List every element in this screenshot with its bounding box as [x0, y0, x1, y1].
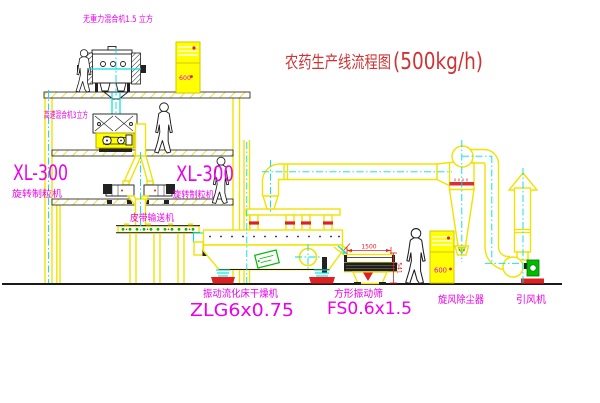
sieve-length-dim: 1500	[361, 244, 376, 251]
cabinet-upper-text: 600	[179, 74, 191, 82]
person-figure	[406, 229, 425, 284]
square-sieve-machine	[344, 255, 397, 285]
belt-conveyor-machine	[116, 223, 200, 283]
high-speed-mixer	[93, 114, 137, 152]
fluid-bed-dryer-machine	[204, 209, 343, 284]
granulator-left-model-label: XL-300	[13, 161, 68, 185]
control-cabinet-upper: 600	[176, 42, 200, 93]
induced-fan-machine	[503, 257, 544, 284]
indicator-light	[447, 236, 450, 239]
dryer-model-label: ZLG6x0.75	[190, 300, 294, 321]
fan-base	[521, 279, 544, 284]
top-platform-beam	[44, 92, 250, 98]
granulator-right-model-label: XL-300	[176, 162, 234, 186]
sieve-height-dim: 541	[396, 262, 403, 274]
granulator-left-name-label: 旋转制粒机	[12, 188, 63, 200]
belt-conveyor-label: 皮带输送机	[130, 212, 174, 224]
sieve-model-label: FS0.6x1.5	[327, 299, 412, 319]
dryer-base-right	[309, 277, 335, 284]
diagram-canvas: 600	[0, 0, 600, 403]
indicator-light	[449, 268, 452, 271]
granulator-right-name-label: 旋转制粒机	[173, 189, 214, 201]
indicator-light	[192, 46, 195, 49]
dryer-base-left	[211, 277, 235, 284]
conveyor-legs	[130, 233, 184, 283]
ground-floor-wall	[57, 205, 60, 283]
diagram-title: 农药生产线流程图	[285, 53, 391, 73]
high-speed-mixer-label: 高速混合机3立方	[44, 109, 88, 121]
person-figure	[155, 103, 173, 153]
induced-fan-label: 引风机	[516, 293, 546, 306]
gravity-mixer-label: 无重力混合机1.5 立方	[83, 13, 153, 25]
cabinet-lower-text: 600	[434, 267, 447, 275]
dryer-name-label: 振动流化床干燥机	[203, 287, 278, 300]
diagram-title-capacity: (500kg/h)	[393, 49, 483, 75]
control-cabinet-lower: 600	[430, 231, 454, 283]
cyclone-label: 旋风除尘器	[438, 293, 484, 306]
process-flow-diagram: 600	[0, 0, 600, 403]
dryer-exhaust-duct	[263, 164, 451, 210]
